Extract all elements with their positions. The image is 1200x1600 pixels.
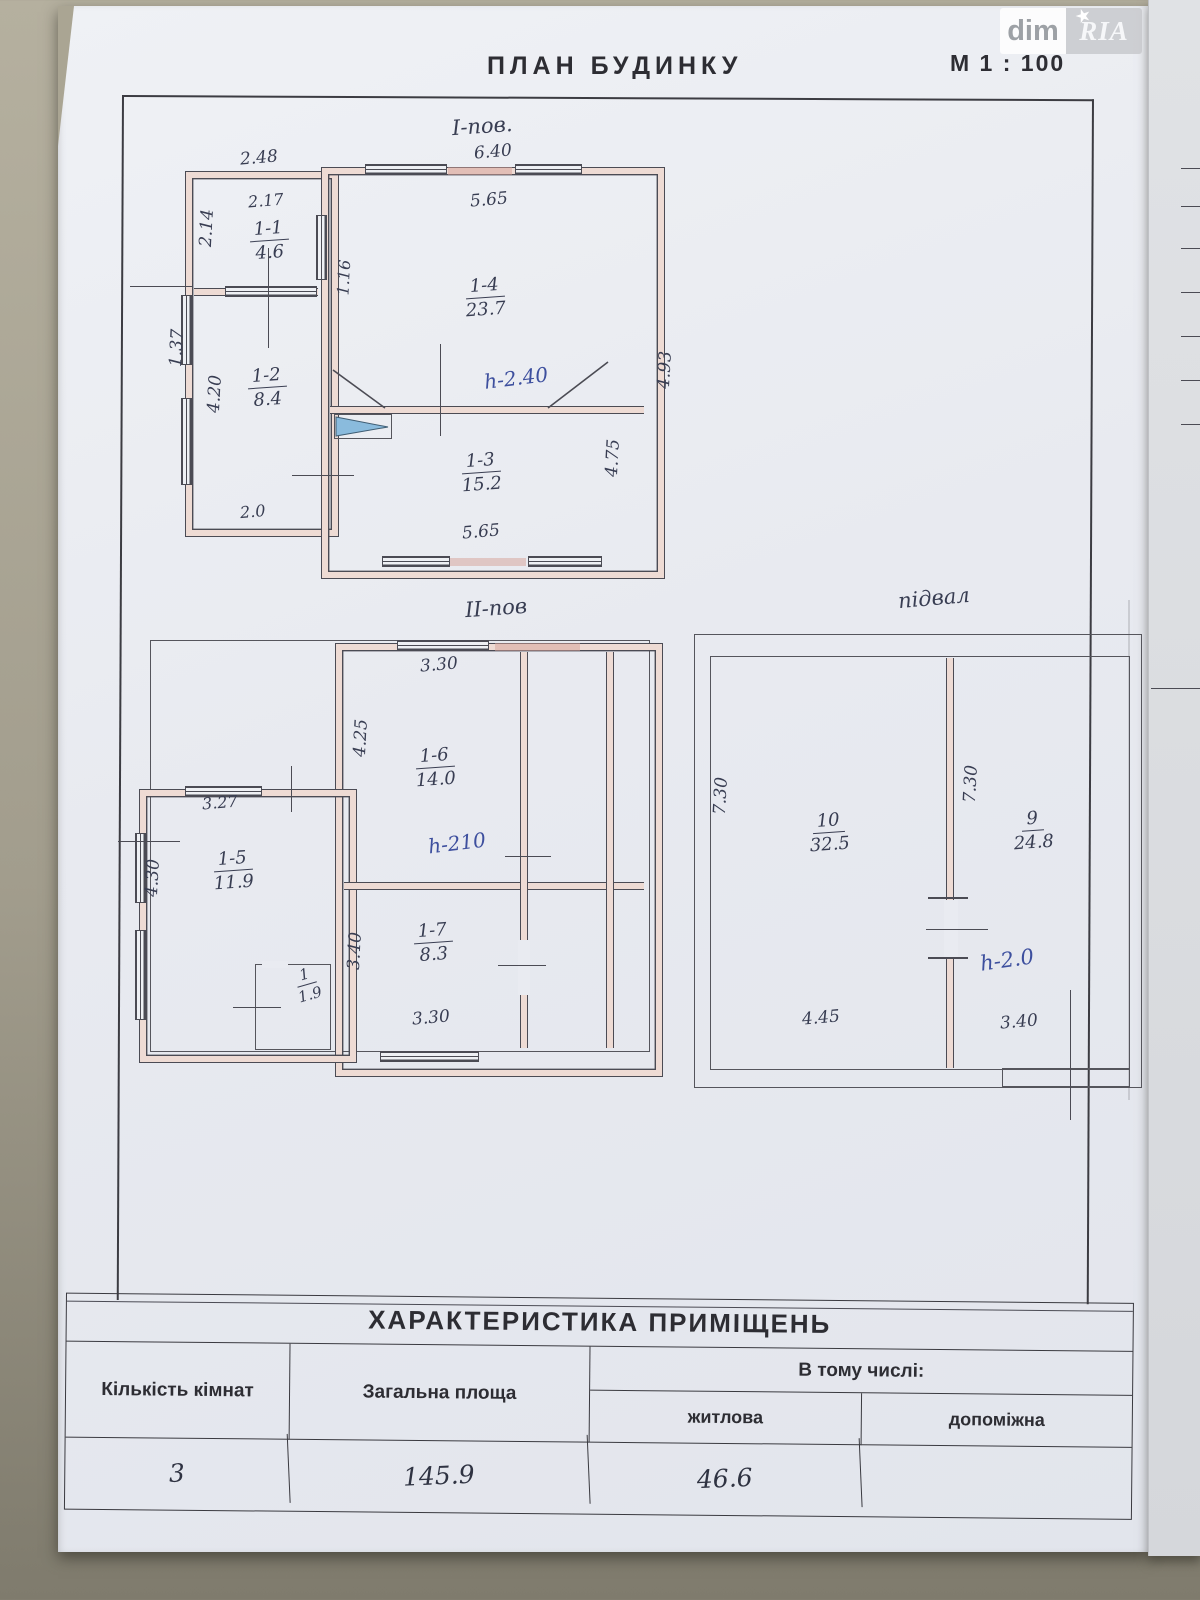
axis-line <box>130 286 192 287</box>
room-label: 1-4 23.7 <box>451 273 520 322</box>
characteristics-table: ХАРАКТЕРИСТИКА ПРИМІЩЕНЬ Кількість кімна… <box>64 1293 1134 1520</box>
value-total: 145.9 <box>288 1435 591 1517</box>
window-symbol <box>397 640 489 651</box>
dim-label: 3.30 <box>411 1006 450 1029</box>
dim-label: 4.30 <box>142 859 164 898</box>
axis-line <box>498 965 546 966</box>
axis-line <box>292 475 354 476</box>
window-symbol <box>225 286 317 297</box>
watermark-dim: dim <box>1000 8 1066 54</box>
dim-label: 3.40 <box>344 932 366 971</box>
room-label: 10 32.5 <box>795 808 864 857</box>
axis-line <box>233 1007 281 1008</box>
room-number: 1-5 <box>212 847 253 873</box>
floor2-room-partition <box>344 882 644 890</box>
dim-label: 4.20 <box>204 375 226 414</box>
sheet2-line <box>1181 380 1200 381</box>
wall-segment <box>450 558 526 566</box>
watermark: dim ★ RIA <box>1000 8 1142 54</box>
dim-label: 2.48 <box>239 146 278 169</box>
room-number: 9 <box>1021 807 1044 831</box>
window-symbol <box>382 556 450 567</box>
sheet2-line <box>1151 688 1200 689</box>
window-symbol <box>380 1051 479 1062</box>
dim-label: 6.40 <box>473 140 512 163</box>
basement-entry <box>1002 1068 1130 1087</box>
door-tick <box>928 957 968 959</box>
wall-segment <box>495 643 580 651</box>
col-header-total: Загальна площа <box>290 1344 591 1443</box>
dim-label: 7.30 <box>710 777 732 816</box>
dim-label: 4.45 <box>801 1006 840 1029</box>
room-area: 4.6 <box>238 240 301 265</box>
room-label: 1-7 8.3 <box>401 918 466 967</box>
room-number: 1-1 <box>248 217 289 243</box>
basement-partition <box>946 658 954 1068</box>
room-number: 1-7 <box>412 919 453 945</box>
room-number: 1-3 <box>460 449 501 475</box>
col-header-auxiliary: допоміжна <box>862 1393 1132 1448</box>
room-area: 8.3 <box>402 942 465 967</box>
axis-line <box>118 841 180 842</box>
window-symbol <box>365 164 447 175</box>
axis-line <box>926 929 988 930</box>
window-symbol <box>181 398 192 485</box>
sheet2-line <box>1181 206 1200 207</box>
room-label: 1-3 15.2 <box>447 448 516 497</box>
stair-arrow-icon <box>336 417 388 436</box>
sheet2-line <box>1181 168 1200 169</box>
dim-label: 4.93 <box>654 351 676 390</box>
room-number: 1-4 <box>464 274 505 300</box>
ceiling-slope-lines <box>325 350 655 445</box>
sheet2-line <box>1181 424 1200 425</box>
window-symbol <box>528 556 602 567</box>
axis-line <box>505 856 551 857</box>
floor1-title: І-пов. <box>451 112 513 140</box>
window-symbol <box>316 215 327 280</box>
basement-inner-wall <box>710 656 1130 1070</box>
dim-label: 3.30 <box>419 653 458 676</box>
axis-line <box>291 766 292 812</box>
watermark-ria: ★ RIA <box>1066 8 1142 54</box>
door-tick <box>928 897 968 899</box>
dim-label: 7.30 <box>960 765 982 804</box>
sheet2-line <box>1181 336 1200 337</box>
dim-label: 1.16 <box>333 259 354 296</box>
dim-label: 2.17 <box>247 189 284 211</box>
dim-label: 4.25 <box>350 719 372 758</box>
extension-line <box>1070 990 1071 1120</box>
dim-label: 2.14 <box>196 209 218 248</box>
room-label: 1-2 8.4 <box>235 363 300 412</box>
dim-label: 3.27 <box>201 791 238 813</box>
door-opening <box>262 961 288 968</box>
scale-label: М 1 : 100 <box>950 50 1065 77</box>
sheet2-line <box>1181 248 1200 249</box>
room-number: 1-6 <box>414 744 455 770</box>
dim-label: 2.0 <box>239 501 266 522</box>
window-symbol <box>515 164 582 175</box>
value-rooms: 3 <box>64 1434 291 1513</box>
col-header-rooms: Кількість кімнат <box>66 1342 291 1440</box>
value-living: 46.6 <box>588 1438 863 1519</box>
floor2-partition <box>606 652 614 1048</box>
room-number: 1-2 <box>246 364 287 390</box>
room-number: 10 <box>811 809 845 834</box>
wall-segment <box>448 167 512 175</box>
room-label: 1-6 14.0 <box>401 743 470 792</box>
floor2-title: ІІ-пов <box>464 594 528 622</box>
sheet2-line <box>1181 292 1200 293</box>
value-auxiliary <box>860 1441 1133 1521</box>
col-header-living: житлова <box>590 1391 862 1446</box>
door-opening <box>518 940 530 995</box>
page-title: ПЛАН БУДИНКУ <box>487 52 742 81</box>
room-label: 1-5 11.9 <box>199 846 268 895</box>
dim-label: 5.65 <box>461 520 500 543</box>
dim-label: 5.65 <box>469 188 508 211</box>
room-area: 8.4 <box>236 387 299 412</box>
dim-label: 4.75 <box>602 439 624 478</box>
dim-label: 3.40 <box>999 1010 1038 1033</box>
room-label: 9 24.8 <box>999 806 1068 855</box>
dim-label: 1.37 <box>166 329 188 368</box>
col-header-including: В тому числі: <box>590 1347 1132 1396</box>
window-symbol <box>135 930 146 1020</box>
second-sheet-edge <box>1148 0 1200 1556</box>
room-label: 1-1 4.6 <box>237 216 302 265</box>
